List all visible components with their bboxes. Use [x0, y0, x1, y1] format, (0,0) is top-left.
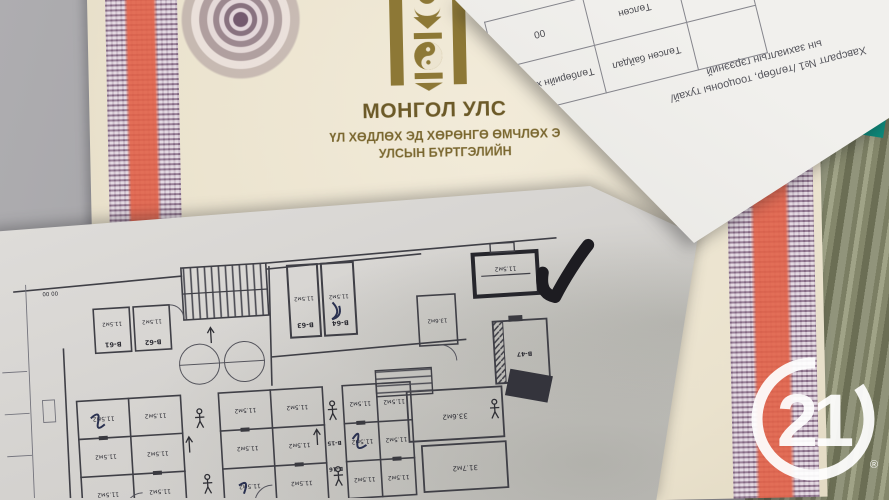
c21-number: 21: [777, 379, 853, 462]
c21-registered-mark: ®: [870, 459, 878, 471]
century21-watermark: 21 ®: [736, 342, 889, 496]
photo-scene: МОНГОЛ УЛС ҮЛ ХӨДЛӨХ ЭД ХӨРӨНГӨ ӨМЧЛӨХ Э…: [0, 0, 889, 500]
